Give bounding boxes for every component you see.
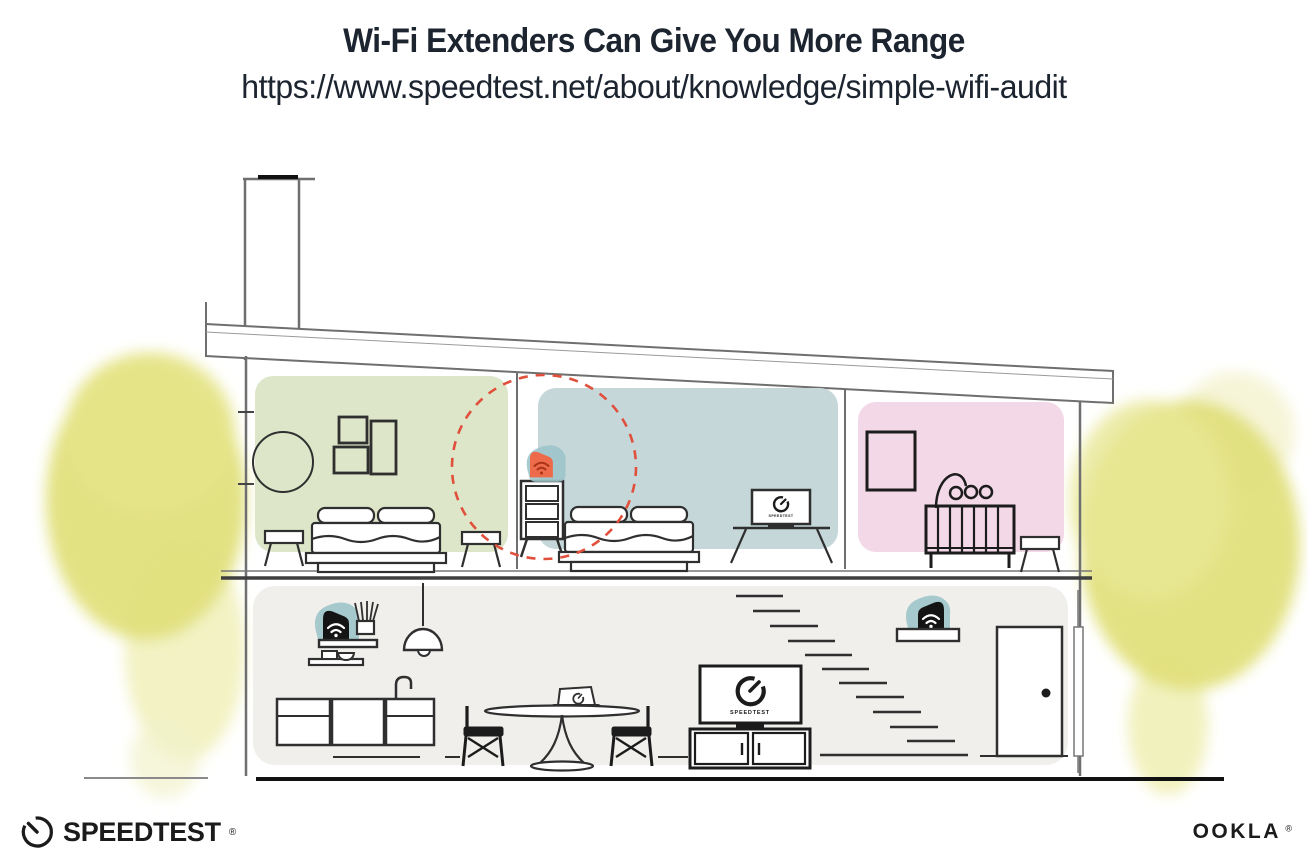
infographic-canvas: Wi-Fi Extenders Can Give You More Range … <box>0 0 1308 861</box>
tv-lower-label: SPEEDTEST <box>730 710 770 716</box>
bowl <box>338 653 354 660</box>
wifi-extender-highlighted-icon <box>527 445 566 482</box>
tree-right-watercolor <box>1070 372 1300 795</box>
living-room-tv: SPEEDTEST <box>690 666 810 768</box>
registered-mark: ® <box>1285 824 1292 834</box>
downspout <box>1074 590 1083 773</box>
tree-left-watercolor <box>46 352 246 798</box>
door-knob <box>1042 689 1051 698</box>
media-console <box>690 729 810 768</box>
house-illustration-svg: SPEEDTEST <box>0 0 1308 861</box>
registered-mark: ® <box>229 827 236 838</box>
speedtest-wordmark: SPEEDTEST <box>63 817 221 848</box>
tv-upper-label: SPEEDTEST <box>769 514 794 518</box>
ookla-wordmark: OOKLA <box>1193 820 1281 843</box>
ookla-logo: OOKLA ® <box>1193 820 1292 844</box>
speedtest-logo: SPEEDTEST ® <box>18 813 236 851</box>
house-illustration: SPEEDTEST <box>0 0 1308 861</box>
speedtest-gauge-icon <box>18 813 56 851</box>
stool <box>1021 537 1059 572</box>
cup <box>322 651 337 659</box>
ground <box>84 778 1224 779</box>
